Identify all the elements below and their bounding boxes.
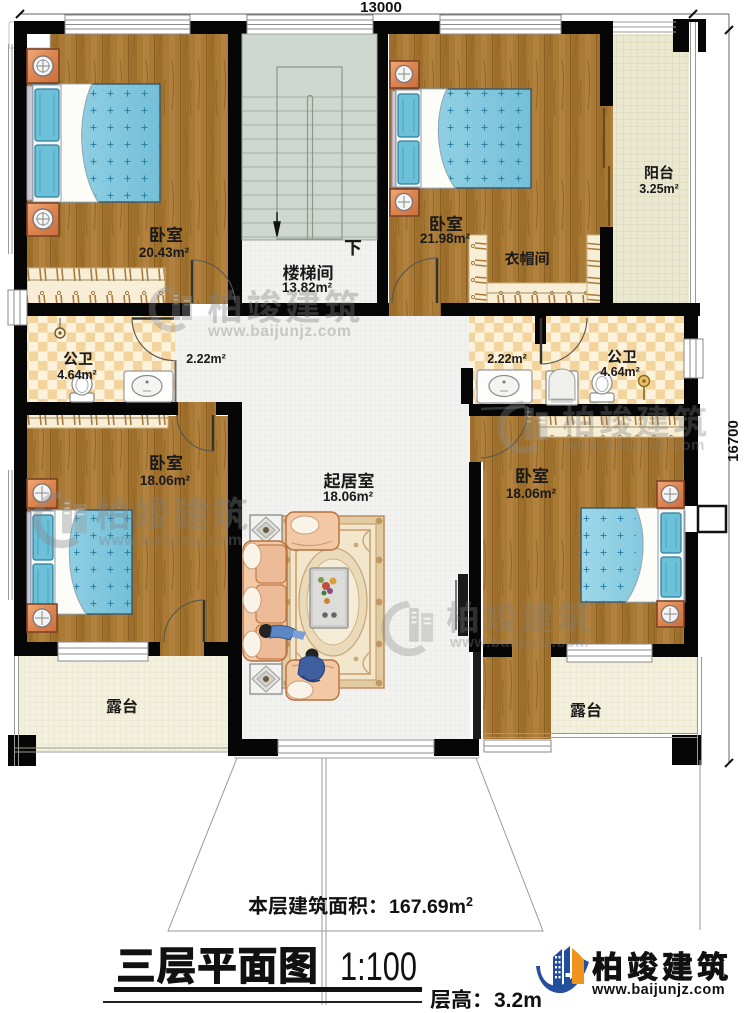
svg-text:167.69m2: 167.69m2 <box>389 895 473 918</box>
svg-text:18.06m²: 18.06m² <box>323 489 374 504</box>
svg-text:18.06m²: 18.06m² <box>506 486 557 501</box>
svg-text:3.25m²: 3.25m² <box>639 182 679 196</box>
svg-text:18.06m²: 18.06m² <box>140 473 191 488</box>
svg-text:www.baijunjz.com: www.baijunjz.com <box>449 634 589 651</box>
svg-text:2.22m²: 2.22m² <box>186 352 226 366</box>
svg-text:21.98m²: 21.98m² <box>420 231 471 246</box>
svg-text:www.baijunjz.com: www.baijunjz.com <box>98 532 242 549</box>
svg-text:20.43m²: 20.43m² <box>139 245 190 260</box>
svg-text:4.64m²: 4.64m² <box>57 368 97 382</box>
svg-text:2.22m²: 2.22m² <box>487 352 527 366</box>
svg-text:www.baijunjz.com: www.baijunjz.com <box>207 323 351 340</box>
svg-text:www.baijunjz.com: www.baijunjz.com <box>591 982 725 998</box>
svg-text:13000: 13000 <box>360 0 402 16</box>
svg-text:1:100: 1:100 <box>340 945 417 989</box>
svg-text:16700: 16700 <box>725 420 742 462</box>
svg-text:www.baijunjz.com: www.baijunjz.com <box>565 437 705 454</box>
svg-text:3.2m: 3.2m <box>494 989 542 1012</box>
svg-text:4.64m²: 4.64m² <box>600 365 640 379</box>
